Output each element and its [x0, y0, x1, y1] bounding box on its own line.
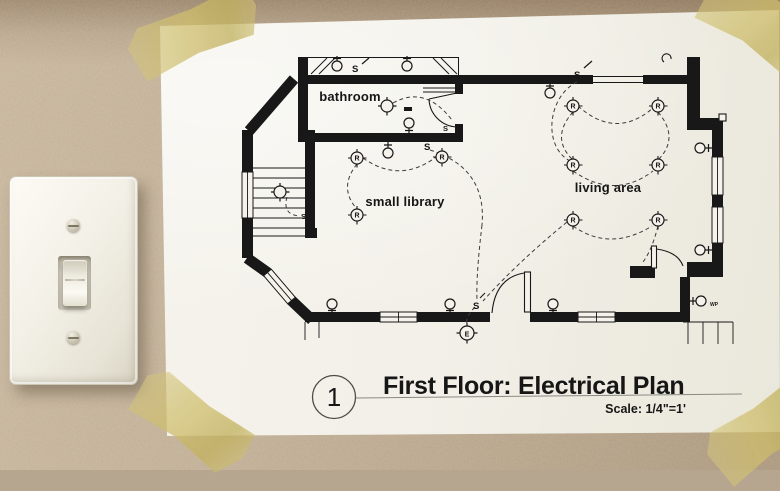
scale-label: Scale: 1/4"=1' — [605, 402, 686, 416]
toggle-seam — [65, 279, 85, 281]
exterior-light-symbol: E — [457, 323, 478, 344]
svg-text:S: S — [443, 124, 448, 133]
svg-text:S: S — [473, 301, 479, 312]
toggle-bezel — [58, 256, 91, 310]
porch-outline — [308, 58, 459, 76]
svg-text:S: S — [574, 70, 580, 81]
drawing-title: First Floor: Electrical Plan — [383, 372, 684, 400]
room-label-small-library: small library — [365, 194, 445, 209]
weatherproof-label: WP — [710, 302, 719, 308]
light-switch-toggle[interactable] — [63, 260, 87, 306]
svg-text:S: S — [301, 212, 306, 221]
screw-slot — [68, 225, 79, 227]
room-label-bathroom: bathroom — [319, 89, 381, 104]
wiring-runs — [286, 82, 669, 325]
recessed-light-symbols: R R R R R R R R R — [348, 97, 668, 230]
entry-steps — [305, 322, 733, 344]
plate-screw-top — [67, 219, 80, 232]
svg-text:R: R — [655, 104, 660, 111]
svg-text:R: R — [354, 213, 359, 220]
svg-text:R: R — [570, 163, 575, 170]
bay-window — [264, 269, 296, 304]
svg-text:E: E — [465, 332, 470, 339]
svg-text:R: R — [439, 155, 444, 162]
title-block: 1 First Floor: Electrical Plan Scale: 1/… — [313, 372, 743, 419]
plate-screw-bottom — [67, 331, 80, 344]
sheet-number: 1 — [327, 382, 341, 412]
svg-text:R: R — [570, 104, 575, 111]
light-switch-plate — [9, 176, 138, 385]
screw-slot — [68, 337, 79, 339]
svg-text:R: R — [655, 218, 660, 225]
svg-text:R: R — [655, 163, 660, 170]
room-label-living-area: living area — [575, 180, 642, 195]
svg-text:R: R — [354, 156, 359, 163]
walls — [242, 57, 723, 322]
svg-text:S: S — [424, 142, 430, 153]
svg-text:S: S — [352, 64, 358, 75]
svg-text:R: R — [570, 218, 575, 225]
